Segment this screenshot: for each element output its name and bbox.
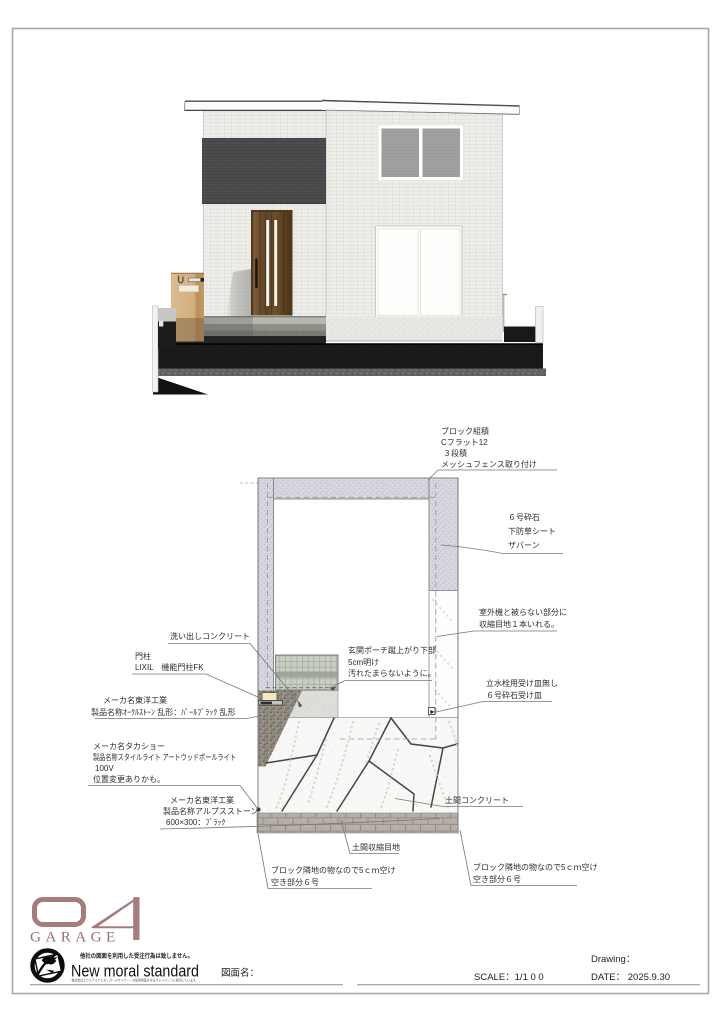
svg-text:汚れたまらないように。: 汚れたまらないように。 [348,668,436,678]
svg-text:３段積: ３段積 [443,448,467,458]
svg-text:5cm明け: 5cm明け [348,658,379,667]
svg-text:株式会社エクステリアエボ・ガーデザイナー・の知的財産を守るキ: 株式会社エクステリアエボ・ガーデザイナー・の知的財産を守るキャンペーンに賛同して… [72,978,199,983]
svg-text:ブロック隣地の物なので5ｃｍ空け: ブロック隣地の物なので5ｃｍ空け [271,865,395,875]
svg-text:SCALE：1/1 0 0: SCALE：1/1 0 0 [474,972,544,983]
svg-text:図面名：: 図面名： [221,967,259,979]
svg-text:６号砕石受け皿: ６号砕石受け皿 [486,690,542,700]
svg-text:収縮目地１本いれる。: 収縮目地１本いれる。 [479,619,559,629]
svg-text:メーカ名タカショー: メーカ名タカショー [93,741,165,751]
svg-text:６号砕石: ６号砕石 [508,512,540,522]
svg-text:ブロック組積: ブロック組積 [441,426,489,436]
svg-text:位置変更ありかも。: 位置変更ありかも。 [93,774,165,784]
svg-text:ブロック隣地の物なので5ｃｍ空け: ブロック隣地の物なので5ｃｍ空け [473,862,597,872]
svg-text:GARAGE: GARAGE [30,929,120,946]
svg-text:DATE： 2025.9.30: DATE： 2025.9.30 [591,972,670,983]
svg-text:土間収縮目地: 土間収縮目地 [352,842,400,852]
svg-text:Drawing：: Drawing： [591,954,635,965]
svg-text:室外機と被らない部分に: 室外機と被らない部分に [479,607,567,617]
svg-text:メーカ名東洋工業: メーカ名東洋工業 [170,795,234,805]
svg-text:ザバーン: ザバーン [508,541,540,550]
svg-text:空き部分６号: 空き部分６号 [271,877,319,887]
svg-text:製品名称アルプスストーン: 製品名称アルプスストーン [163,806,259,816]
svg-text:玄関ポーチ蹴上がり下部: 玄関ポーチ蹴上がり下部 [348,645,436,655]
svg-text:製品名称スタイルライト アートウッドポールライト: 製品名称スタイルライト アートウッドポールライト [93,752,236,762]
svg-text:LIXIL 機能門柱FK: LIXIL 機能門柱FK [135,662,204,672]
svg-text:空き部分６号: 空き部分６号 [473,874,521,884]
svg-text:Cフラット12: Cフラット12 [441,438,488,447]
svg-text:600×300：ﾌﾞﾗｯｸ: 600×300：ﾌﾞﾗｯｸ [166,818,225,827]
svg-text:製品名称ｵｰｸﾙｽﾄｰﾝ 乱形：ﾊﾟｰﾙﾌﾞﾗｯｸ 乱形: 製品名称ｵｰｸﾙｽﾄｰﾝ 乱形：ﾊﾟｰﾙﾌﾞﾗｯｸ 乱形 [91,707,235,717]
svg-text:門柱: 門柱 [135,651,151,661]
svg-text:メッシュフェンス取り付け: メッシュフェンス取り付け [441,459,537,469]
svg-text:100V: 100V [95,764,114,773]
svg-text:下防草シート: 下防草シート [508,526,556,536]
svg-text:メーカ名東洋工業: メーカ名東洋工業 [103,695,167,705]
svg-text:他社の図面を利用した受注行為は致しません。: 他社の図面を利用した受注行為は致しません。 [79,952,193,960]
svg-text:土間コンクリート: 土間コンクリート [445,795,509,805]
svg-text:立水栓用受け皿無し: 立水栓用受け皿無し [486,678,558,688]
svg-text:洗い出しコンクリート: 洗い出しコンクリート [170,631,250,641]
